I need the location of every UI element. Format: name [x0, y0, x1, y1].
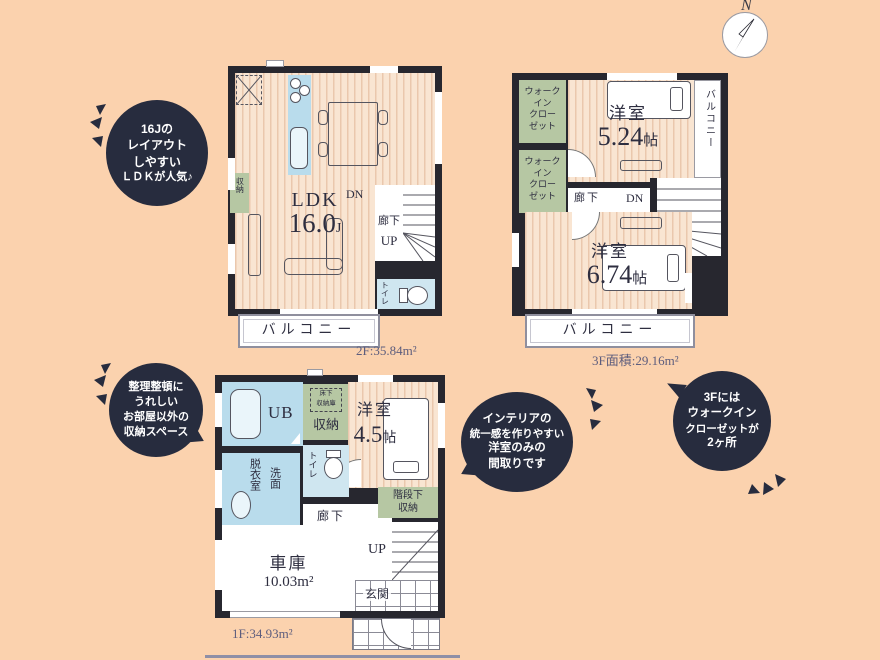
- pillow: [393, 461, 419, 473]
- label-storage-2f: 収納: [235, 177, 243, 211]
- label-up-2f: UP: [375, 234, 403, 248]
- speech-bubble-storage: 整理整頓に うれしい お部屋以外の 収納スペース: [109, 363, 203, 457]
- compass-icon: [722, 12, 768, 58]
- label-balcony-3f-bottom: バルコニー: [563, 324, 658, 339]
- balcony-3f-side: バルコニー: [694, 80, 721, 178]
- speech-bubble-wic: 3Fには ウォークイン クローゼットが 2ヶ所: [673, 371, 771, 471]
- bubble-line: レイアウト: [127, 137, 187, 153]
- sink-oval: [231, 491, 251, 519]
- dining-chair: [378, 110, 388, 125]
- bubble-line: クローゼットが: [685, 422, 759, 436]
- bubble-line: 間取りです: [488, 457, 546, 473]
- label-wic-2: ウォーク イン クロー ゼット: [519, 156, 566, 203]
- window: [215, 470, 222, 508]
- compass-needle: [723, 13, 766, 56]
- bubble-line: インテリアの: [483, 412, 552, 428]
- dresser: [620, 160, 662, 171]
- label-hall-1f: 廊下: [317, 510, 345, 523]
- balcony-3f-bottom: バルコニー: [525, 314, 695, 348]
- window: [685, 273, 692, 303]
- ldk-size-unit: J: [336, 221, 341, 236]
- label-balcony-2f: バルコニー: [262, 324, 357, 339]
- bubble-line: お部屋以外の: [123, 410, 189, 425]
- bubble-tail: [454, 461, 481, 488]
- label-hall-3f: 廊下: [574, 193, 600, 205]
- entrance-porch: [352, 618, 440, 650]
- room-hall-3f: 廊下 DN: [568, 188, 657, 212]
- label-bedroom2-size: 6.74帖: [562, 261, 672, 288]
- emphasis-marks-icon: [748, 460, 788, 496]
- window: [512, 233, 519, 267]
- label-bedroom-1f-size: 4.5帖: [339, 423, 411, 447]
- room-toilet-2f: トイレ: [377, 279, 435, 309]
- room-toilet-1f: トイレ: [303, 445, 349, 497]
- label-wash: 洗面: [268, 467, 280, 517]
- room-wic-2: ウォーク イン クロー ゼット: [519, 150, 566, 213]
- vent-tab: [307, 369, 323, 376]
- bubble-line: 整理整頓に: [129, 380, 184, 395]
- entrance-door-arc: [381, 619, 411, 649]
- speech-bubble-interior: インテリアの 統一感を作りやすい 洋室のみの 間取りです: [461, 392, 573, 492]
- floor1-plan: UB 床下 収納庫 収納 洋室 4.5帖 トイレ: [215, 375, 445, 618]
- pillow: [670, 87, 683, 111]
- room-ub: UB: [222, 382, 303, 446]
- label-dn-3f: DN: [626, 192, 643, 205]
- area-label-1f: 1F:34.93m²: [232, 626, 293, 642]
- bathtub: [230, 389, 261, 439]
- room-dressing: 脱衣室 洗面: [222, 453, 300, 527]
- bubble-line: 3Fには: [704, 391, 740, 407]
- label-bedroom2-3f: 洋室: [570, 243, 650, 261]
- window: [370, 66, 398, 73]
- label-dn-2f: DN: [346, 188, 363, 201]
- bubble-line: ウォークイン: [688, 406, 757, 422]
- underfloor-storage: 床下 収納庫: [310, 388, 342, 412]
- window: [607, 73, 677, 80]
- label-bedroom1-size: 5.24帖: [578, 123, 678, 150]
- bubble-line: 収納スペース: [124, 425, 189, 440]
- tv-board: [248, 214, 261, 276]
- emphasis-marks-icon: [568, 388, 604, 432]
- dining-table: [328, 102, 378, 166]
- label-bedroom-1f: 洋室: [345, 403, 405, 420]
- window: [228, 244, 235, 274]
- room-garage: 車庫 10.03m²: [222, 525, 355, 611]
- label-wic-1: ウォーク イン クロー ゼット: [519, 86, 566, 133]
- ldk-size-num: 16.0: [289, 208, 336, 238]
- garage-door-opening: [230, 611, 340, 618]
- bubble-line: 16Jの: [141, 121, 173, 137]
- label-hall-2f: 廊下: [375, 216, 403, 228]
- floor3-plan: ウォーク イン クロー ゼット ウォーク イン クロー ゼット 洋室 5.24帖: [512, 73, 728, 316]
- label-toilet-1f: トイレ: [307, 451, 316, 493]
- label-garage-size: 10.03m²: [222, 575, 355, 591]
- bubble-line: しやすい: [133, 154, 181, 170]
- label-ub: UB: [268, 404, 294, 422]
- room-entrance: 玄関: [355, 580, 438, 611]
- bubble-line: うれしい: [134, 395, 178, 410]
- label-up-1f: UP: [362, 543, 392, 558]
- label-stair-storage: 階段下 収納: [378, 490, 438, 515]
- area-label-2f: 2F:35.84m²: [356, 343, 417, 359]
- speech-bubble-ldk: 16Jの レイアウト しやすい ＬＤＫが人気♪: [106, 100, 208, 206]
- floorplan-page: N 16Jの レイアウト しやすい ＬＤＫが人気♪ 整理整頓に うれしい お部屋…: [0, 0, 880, 660]
- window: [438, 403, 445, 448]
- stairs-1f: [392, 518, 438, 580]
- label-entrance: 玄関: [363, 588, 391, 601]
- sofa-horizontal: [284, 258, 343, 275]
- label-ldk-size: 16.0J: [262, 209, 368, 237]
- label-bedroom1-3f: 洋室: [588, 105, 668, 123]
- floor2-plan: トイレ 収納: [228, 66, 442, 316]
- bubble-tail: [667, 371, 694, 398]
- window: [228, 158, 235, 190]
- stove-burner-icon: [290, 92, 301, 103]
- label-toilet-2f: トイレ: [380, 281, 388, 307]
- dining-chair: [318, 142, 328, 157]
- ground-line: [205, 655, 460, 658]
- label-garage: 車庫: [222, 555, 355, 573]
- label-dressing: 脱衣室: [248, 458, 260, 522]
- kitchen-sink: [290, 127, 308, 169]
- hatch-box: [236, 75, 262, 105]
- bubble-line: 洋室のみの: [488, 441, 546, 457]
- kitchen-counter: [288, 75, 311, 175]
- window: [215, 540, 222, 590]
- vent-tab: [266, 60, 284, 67]
- dining-chair: [378, 142, 388, 157]
- window: [358, 375, 393, 382]
- stairs-2f: [403, 185, 435, 261]
- dresser: [620, 217, 662, 229]
- dining-chair: [318, 110, 328, 125]
- door-mark: [291, 433, 300, 444]
- area-label-3f: 3F面積:29.16m²: [592, 350, 679, 369]
- bubble-line: ＬＤＫが人気♪: [121, 170, 193, 185]
- window: [435, 92, 442, 164]
- label-balcony-3f-side: バルコニー: [703, 89, 714, 173]
- window: [215, 393, 222, 427]
- bubble-line: 2ヶ所: [707, 436, 736, 452]
- room-wic-1: ウォーク イン クロー ゼット: [519, 80, 566, 143]
- stove-burner-icon: [299, 85, 310, 96]
- room-stair-storage: 階段下 収納: [378, 487, 438, 518]
- bubble-line: 統一感を作りやすい: [470, 427, 565, 441]
